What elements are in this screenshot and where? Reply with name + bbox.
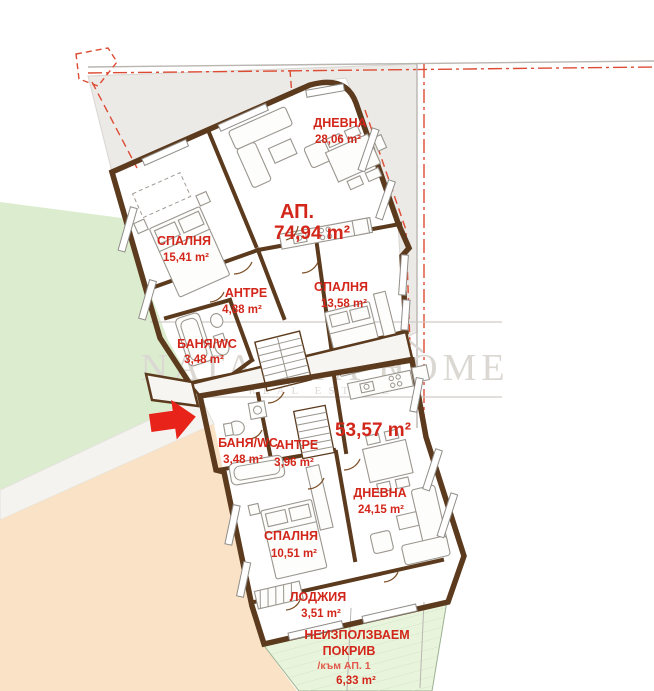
label-roof-line1: НЕИЗПОЛЗВАЕМ bbox=[304, 628, 409, 642]
label-loggia-area: 3,51 m² bbox=[301, 608, 341, 620]
label-apartment2-area: 53,57 m² bbox=[335, 420, 411, 441]
label-bedroom2-name: СПАЛНЯ bbox=[314, 280, 368, 294]
label-bath2-area: 3,48 m² bbox=[223, 454, 263, 466]
label-bedroom3-area: 10,51 m² bbox=[271, 548, 317, 560]
label-antre2-name: АНТРЕ bbox=[276, 438, 318, 452]
label-bath2-name: БАНЯ/WC bbox=[218, 436, 278, 450]
floor-plan-page: NATALIYA HOME REAL ESTATE bbox=[0, 0, 654, 691]
label-bath1-name: БАНЯ/WC bbox=[177, 337, 237, 351]
label-apartment1-area: 74,94 m² bbox=[274, 223, 350, 244]
label-roof-line3: /към АП. 1 bbox=[317, 660, 370, 672]
label-living2-area: 24,15 m² bbox=[358, 504, 404, 516]
label-loggia-name: ЛОДЖИЯ bbox=[290, 590, 347, 604]
label-living1-name: ДНЕВНА bbox=[313, 116, 366, 130]
label-living2-name: ДНЕВНА bbox=[353, 486, 406, 500]
floor-plan: NATALIYA HOME REAL ESTATE bbox=[0, 0, 654, 691]
label-roof-line2: ПОКРИВ bbox=[323, 644, 376, 658]
label-bedroom3-name: СПАЛНЯ bbox=[264, 529, 318, 543]
label-bedroom1-name: СПАЛНЯ bbox=[157, 234, 211, 248]
label-apartment1-name: АП. bbox=[280, 201, 314, 223]
label-antre1-area: 4,88 m² bbox=[222, 304, 262, 316]
label-roof-area: 6,33 m² bbox=[336, 675, 376, 687]
bed-apartment2-bedroom bbox=[243, 465, 342, 582]
label-antre2-area: 3,96 m² bbox=[274, 457, 314, 469]
label-bedroom1-area: 15,41 m² bbox=[163, 252, 209, 264]
label-antre1-name: АНТРЕ bbox=[225, 286, 267, 300]
wardrobe-dashed-bedroom1 bbox=[133, 173, 191, 218]
label-bedroom2-area: 13,58 m² bbox=[321, 298, 367, 310]
label-living1-area: 28,06 m² bbox=[315, 134, 361, 146]
label-bath1-area: 3,48 m² bbox=[184, 354, 224, 366]
